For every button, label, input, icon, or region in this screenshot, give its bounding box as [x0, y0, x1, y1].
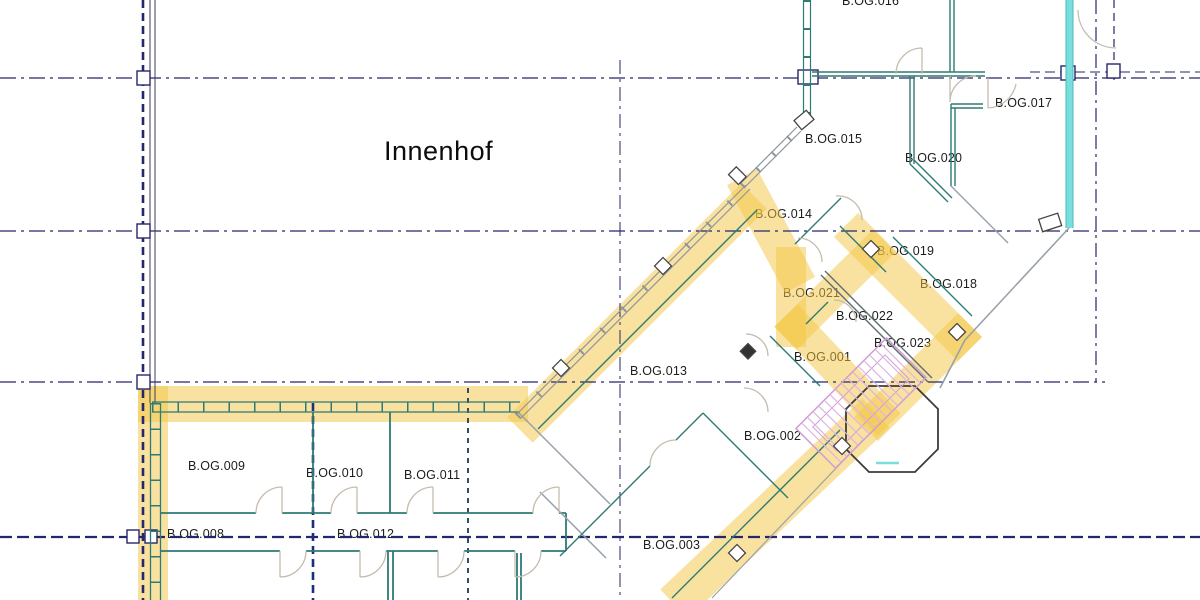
grid-marker — [137, 224, 150, 238]
grid-marker — [127, 530, 139, 543]
window-wall-ticks — [517, 186, 747, 416]
room-label-b-og-008: B.OG.008 — [167, 527, 224, 541]
grid-marker — [145, 530, 157, 543]
corridor-walls — [160, 412, 566, 600]
route-left-strip — [138, 386, 168, 600]
door-jamb — [1039, 213, 1062, 232]
stair-room-octagon — [846, 386, 938, 472]
door-jamb-filled — [740, 344, 756, 360]
grid-markers-layer — [127, 64, 1120, 543]
jamb-markers-layer — [553, 110, 1062, 561]
room-label-b-og-013: B.OG.013 — [630, 364, 687, 378]
grid-marker — [137, 71, 150, 85]
door-jamb — [794, 110, 814, 129]
exterior-diagonal-wall — [940, 228, 1069, 388]
floor-plan-drawing — [0, 0, 1200, 600]
room-label-b-og-012: B.OG.012 — [337, 527, 394, 541]
route-marker — [655, 258, 672, 275]
route-marker — [949, 324, 966, 341]
grid-marker — [1061, 66, 1075, 80]
grid-marker — [1107, 64, 1120, 78]
room-label-b-og-021: B.OG.021 — [783, 286, 840, 300]
room-label-b-og-011: B.OG.011 — [404, 468, 460, 482]
room-label-b-og-016: B.OG.016 — [842, 0, 899, 8]
room-label-b-og-002: B.OG.002 — [744, 429, 801, 443]
route-loop-sw — [797, 327, 878, 413]
room-label-b-og-022: B.OG.022 — [836, 309, 893, 323]
door-jamb — [729, 167, 747, 185]
room-label-b-og-014: B.OG.014 — [755, 207, 812, 221]
door-arcs-layer — [256, 10, 1116, 577]
room-label-b-og-010: B.OG.010 — [306, 466, 363, 480]
room-label-b-og-009: B.OG.009 — [188, 459, 245, 473]
room-label-b-og-015: B.OG.015 — [805, 132, 862, 146]
grid-marker — [798, 70, 818, 84]
route-marker — [553, 360, 570, 377]
room-label-b-og-020: B.OG.020 — [905, 151, 962, 165]
room-label-b-og-018: B.OG.018 — [920, 277, 977, 291]
floor-plan-page: B.OG.016 B.OG.017 B.OG.015 B.OG.020 B.OG… — [0, 0, 1200, 600]
route-marker — [729, 545, 746, 562]
room-label-b-og-003: B.OG.003 — [643, 538, 700, 552]
highlight-route-layer — [138, 192, 958, 600]
room-label-b-og-023: B.OG.023 — [874, 336, 931, 350]
top-rooms-walls — [812, 0, 985, 202]
room-label-b-og-019: B.OG.019 — [877, 244, 934, 258]
grid-marker — [137, 375, 150, 389]
room-label-b-og-017: B.OG.017 — [995, 96, 1052, 110]
route-turn-se — [750, 192, 792, 270]
window-wall-ticks — [742, 129, 799, 186]
walls-layer — [151, 0, 1074, 600]
route-marker — [834, 438, 851, 455]
room-label-b-og-001: B.OG.001 — [794, 350, 851, 364]
inner-diagonal-walls — [560, 198, 972, 598]
route-diagonal-ne — [520, 196, 754, 430]
route-top-strip — [138, 386, 528, 422]
courtyard-label: Innenhof — [384, 136, 493, 167]
grid-layer — [0, 0, 1200, 600]
